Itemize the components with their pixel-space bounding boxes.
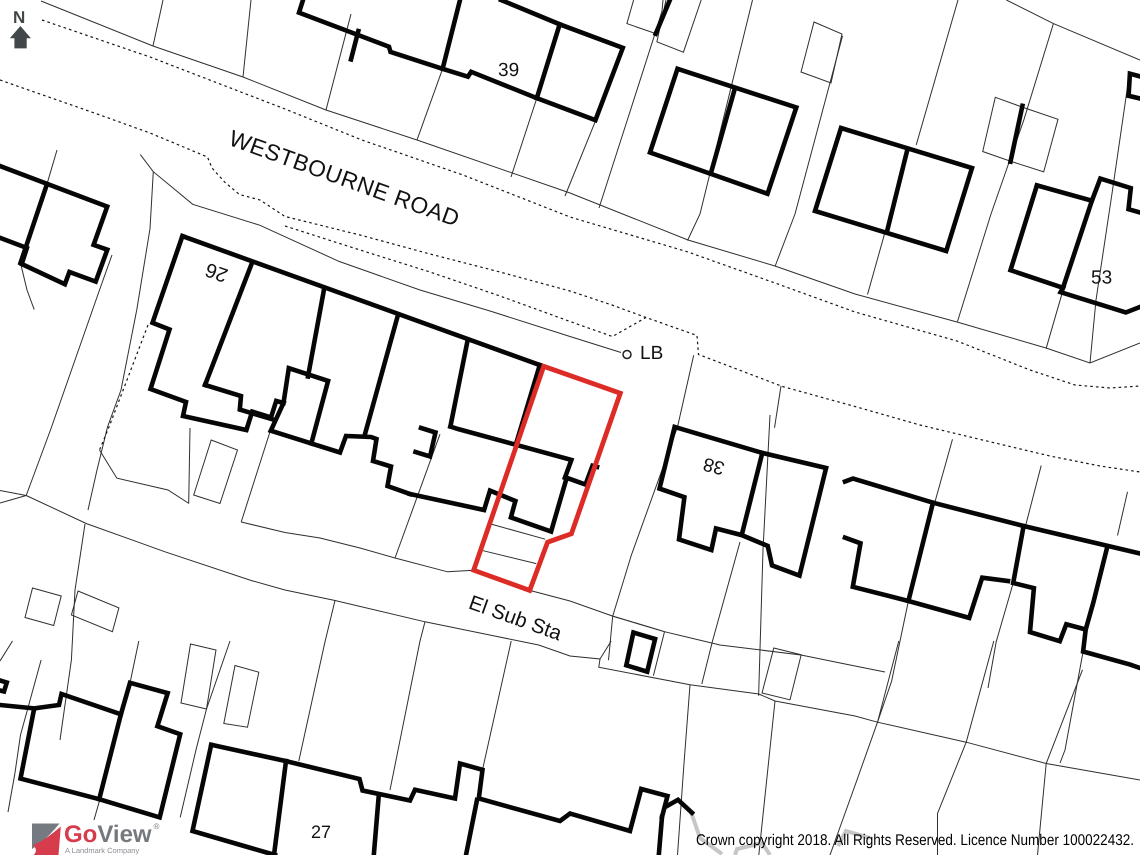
svg-text:GoView: GoView: [64, 821, 152, 848]
svg-text:Crown copyright 2018. All Righ: Crown copyright 2018. All Rights Reserve…: [696, 832, 1134, 849]
svg-text:A Landmark Company: A Landmark Company: [65, 846, 139, 855]
svg-text:53: 53: [1091, 268, 1112, 289]
svg-text:27: 27: [311, 822, 331, 842]
svg-text:®: ®: [154, 822, 160, 831]
svg-text:N: N: [13, 8, 25, 27]
svg-text:LB: LB: [640, 343, 663, 364]
svg-text:39: 39: [498, 60, 519, 81]
